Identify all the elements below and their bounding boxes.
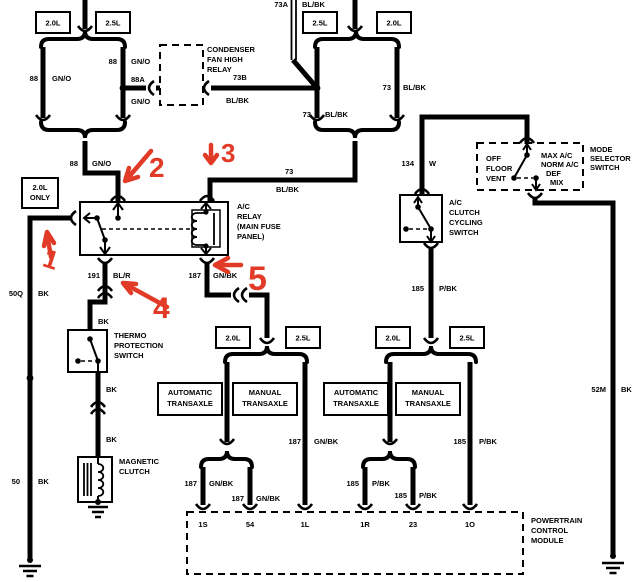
mode-position-label: MAX A/C <box>541 151 573 160</box>
component-label: SELECTOR <box>590 154 631 163</box>
engine-tag: 2.0L <box>225 334 240 343</box>
ground-icon <box>88 507 108 517</box>
junction-dot <box>314 85 321 92</box>
engine-tag: 2.5L <box>295 334 310 343</box>
coil-lines <box>197 213 214 245</box>
arrow-up-icon <box>414 197 422 205</box>
component-label: PANEL) <box>237 232 265 241</box>
wire-label-color: P/BK <box>439 284 458 293</box>
wire-label-color: BK <box>106 435 117 444</box>
thermo-switch-internals <box>75 336 101 372</box>
wire-187 <box>249 295 267 338</box>
wire-label-color: GN/O <box>131 97 150 106</box>
annotation-number-5: 5 <box>248 260 267 298</box>
thermo-switch-box <box>68 330 107 372</box>
magnetic-clutch-internals <box>84 457 103 502</box>
connector <box>260 338 274 343</box>
mode-position-label: MIX <box>550 178 563 187</box>
annotation-number-3: 3 <box>221 138 235 168</box>
wire-label-num: 185 <box>411 284 424 293</box>
ground-icon <box>602 563 624 573</box>
wire-label-color: GN/O <box>52 74 71 83</box>
pcm-pin-label: 1L <box>301 520 310 529</box>
component-label: RELAY <box>237 212 262 221</box>
ground-icon <box>19 566 41 576</box>
wire-label-num: 52M <box>591 385 606 394</box>
wire-label-num: 185 <box>346 479 359 488</box>
transaxle-label: TRANSAXLE <box>405 399 451 408</box>
connector <box>528 193 542 198</box>
ground-dot <box>610 553 616 559</box>
wire-label-num: 88 <box>70 159 78 168</box>
wire-label-color: P/BK <box>479 437 498 446</box>
wire-label-num: 88 <box>30 74 38 83</box>
pcm-pin-label: 1S <box>198 520 207 529</box>
transaxle-label: MANUAL <box>412 388 445 397</box>
wire-label-color: GN/BK <box>209 479 234 488</box>
component-label: SWITCH <box>114 351 144 360</box>
component-label: SWITCH <box>449 228 479 237</box>
component-label: MODULE <box>531 536 564 545</box>
wire-label-color: W <box>429 159 437 168</box>
wire-label-color: BL/BK <box>276 185 299 194</box>
engine-only-tag: ONLY <box>30 193 50 202</box>
brace <box>201 451 252 467</box>
wire-label-num: 187 <box>231 494 244 503</box>
cycling-switch-internals <box>403 197 435 242</box>
ground-dot <box>27 557 33 563</box>
wire-label-color: BL/BK <box>403 83 426 92</box>
arrow-up-icon <box>523 144 531 153</box>
arrow-down-icon <box>532 178 540 190</box>
wire-label-color: BL/BK <box>302 0 325 9</box>
transaxle-label: TRANSAXLE <box>333 399 379 408</box>
component-label: CONDENSER <box>207 45 256 54</box>
switch-arm <box>418 207 431 229</box>
ac-relay-internals <box>84 202 220 254</box>
pcm-pin-label: 1R <box>360 520 370 529</box>
wire-88-feed <box>85 141 118 202</box>
contact-dot <box>115 215 121 221</box>
brace <box>363 451 415 467</box>
wire-label-num: 185 <box>394 491 407 500</box>
brace <box>41 122 125 138</box>
pcm-pin-label: 54 <box>246 520 255 529</box>
junction-dot <box>120 85 127 92</box>
component-label: MODE <box>590 145 613 154</box>
component-label: A/C <box>237 202 251 211</box>
wire-label-num: 73B <box>233 73 247 82</box>
condenser-fan-relay-box <box>160 45 203 105</box>
engine-tag: 2.5L <box>312 19 327 28</box>
wire-73a-diagonal <box>293 60 317 88</box>
engine-tag: 2.5L <box>459 334 474 343</box>
component-label: FAN HIGH <box>207 55 243 64</box>
wire-label-num: 73 <box>285 167 293 176</box>
wire-label-color: GN/O <box>92 159 111 168</box>
pcm-pin-label: 23 <box>409 520 417 529</box>
connector <box>98 258 112 263</box>
wire-label-color: BK <box>106 385 117 394</box>
component-label: (MAIN FUSE <box>237 222 281 231</box>
ac-wiring-diagram: 2.0L 2.5L 2.5L 2.0L 2.0L 2.5L 2.0L 2.5L … <box>0 0 640 582</box>
contact-dot <box>403 226 409 232</box>
wire-label-num: 88A <box>131 75 145 84</box>
wire-label-num: 187 <box>184 479 197 488</box>
wire-label-color: GN/BK <box>314 437 339 446</box>
connector <box>424 338 438 343</box>
wire-label-color: GN/O <box>131 57 150 66</box>
coil-icon <box>98 464 103 496</box>
engine-tag: 2.0L <box>385 334 400 343</box>
wire-label-color: BK <box>38 477 49 486</box>
annotation-arrow-2 <box>127 151 151 179</box>
transaxle-label: TRANSAXLE <box>167 399 213 408</box>
wiring-diagram-page: 2.0L 2.5L 2.5L 2.0L 2.0L 2.5L 2.0L 2.5L … <box>0 0 640 582</box>
brace <box>315 122 399 138</box>
connector <box>200 196 214 201</box>
wire-label-num: 73 <box>303 110 311 119</box>
component-label: A/C <box>449 198 463 207</box>
wire-label-num: 50Q <box>9 289 23 298</box>
engine-tag: 2.0L <box>45 19 60 28</box>
wire-label-num: 134 <box>401 159 414 168</box>
wire-label-num: 88 <box>109 57 117 66</box>
pcm-pin-label: 1O <box>465 520 475 529</box>
connector <box>242 288 247 302</box>
component-label: MAGNETIC <box>119 457 160 466</box>
connector <box>234 288 239 302</box>
connector <box>71 211 76 225</box>
wire-label-color: BL/BK <box>325 110 348 119</box>
component-label: RELAY <box>207 65 232 74</box>
engine-only-tag: 2.0L <box>32 183 47 192</box>
component-label: CLUTCH <box>449 208 480 217</box>
mode-position-label: NORM A/C <box>541 160 579 169</box>
junction-dot <box>27 375 34 382</box>
component-label: THERMO <box>114 331 147 340</box>
switch-arm <box>514 155 527 178</box>
wire-label-color: BK <box>98 317 109 326</box>
component-label: CLUTCH <box>119 467 150 476</box>
wire-label-num: 191 <box>87 271 100 280</box>
connector <box>204 81 209 95</box>
annotation-number-4: 4 <box>153 292 170 325</box>
contact-dot <box>75 358 81 364</box>
wire-52m <box>535 197 613 556</box>
arrow-down-icon <box>427 229 435 242</box>
component-label: POWERTRAIN <box>531 516 582 525</box>
wire-label-num: 73 <box>383 83 391 92</box>
wire-label-color: BK <box>621 385 632 394</box>
switch-arm <box>90 339 98 361</box>
wire-label-color: BK <box>38 289 49 298</box>
mode-position-label: VENT <box>486 174 506 183</box>
wire-label-color: BL/R <box>113 271 131 280</box>
engine-tag: 2.0L <box>386 19 401 28</box>
labels: 2.0L 2.5L 2.5L 2.0L 2.0L 2.5L 2.0L 2.5L … <box>9 0 633 545</box>
transaxle-label: TRANSAXLE <box>242 399 288 408</box>
transaxle-label: AUTOMATIC <box>334 388 379 397</box>
wire-label-num: 187 <box>188 271 201 280</box>
mode-selector-internals <box>511 144 540 190</box>
transaxle-label: MANUAL <box>249 388 282 397</box>
contact-dot <box>511 175 517 181</box>
connector <box>200 258 214 263</box>
engine-tag: 2.5L <box>105 19 120 28</box>
component-label: SWITCH <box>590 163 620 172</box>
component-label: PROTECTION <box>114 341 163 350</box>
wire-label-color: P/BK <box>372 479 391 488</box>
mode-position-label: FLOOR <box>486 164 513 173</box>
wire-label-color: BL/BK <box>226 96 249 105</box>
mode-position-label: DEF <box>546 169 561 178</box>
wire-label-num: 73A <box>274 0 288 9</box>
connector <box>149 81 154 95</box>
transaxle-label: AUTOMATIC <box>168 388 213 397</box>
wire-134 <box>422 117 527 195</box>
component-label: CYCLING <box>449 218 483 227</box>
annotation-number-2: 2 <box>149 152 165 183</box>
wire-label-num: 50 <box>12 477 20 486</box>
component-label: CONTROL <box>531 526 568 535</box>
coil-core-icon <box>84 463 91 496</box>
wire-label-num: 185 <box>453 437 466 446</box>
wire-label-color: GN/BK <box>256 494 281 503</box>
wire-label-num: 187 <box>288 437 301 446</box>
mode-position-label: OFF <box>486 154 501 163</box>
wire-label-color: P/BK <box>419 491 438 500</box>
